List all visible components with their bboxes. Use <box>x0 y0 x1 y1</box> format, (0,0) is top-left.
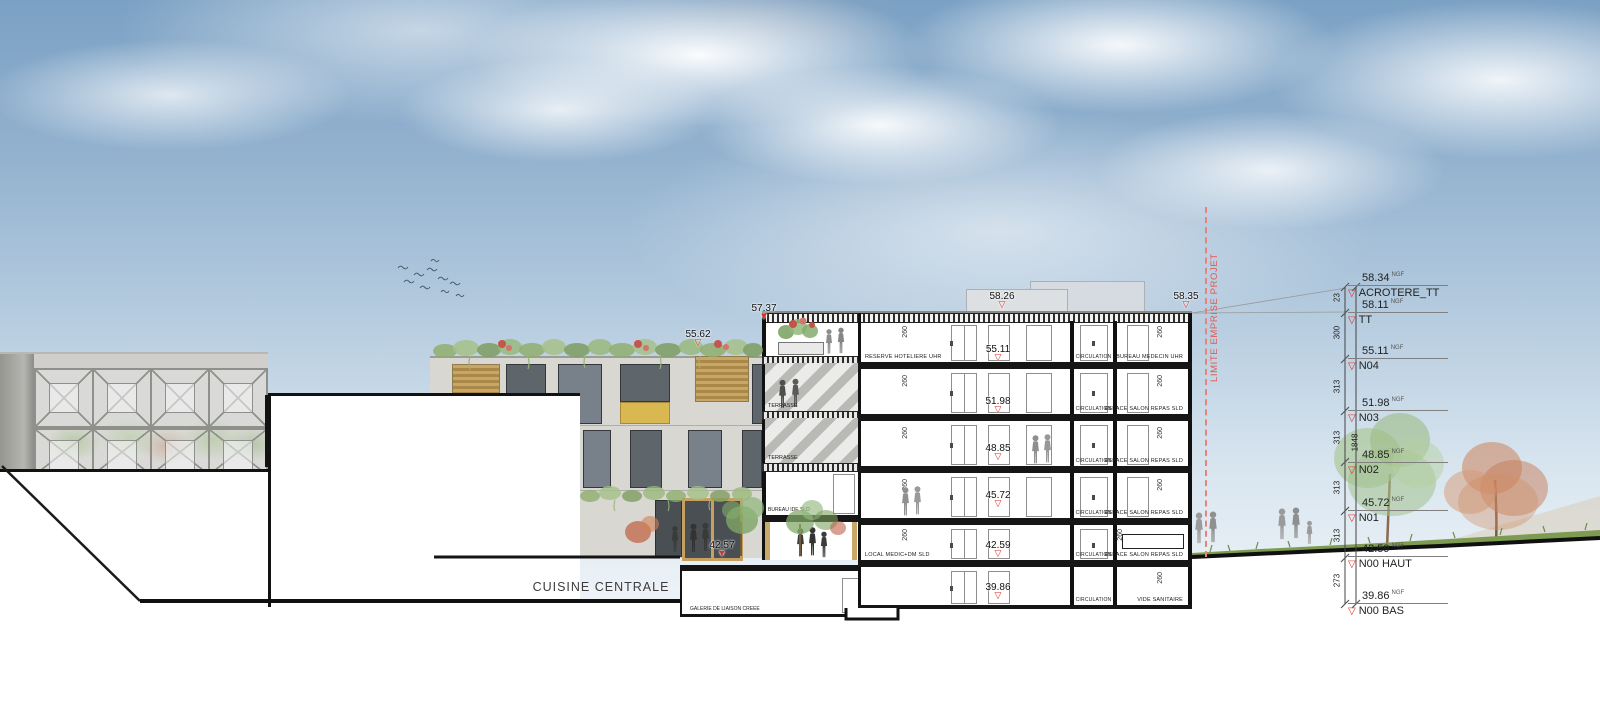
floor-n04: RESERVE HOTELIERE UHR 260 CIRCULATION BU… <box>861 321 1186 362</box>
yellow-spandrel <box>620 402 670 424</box>
facade-cell <box>150 428 210 472</box>
dim-segment: 313 <box>1333 372 1342 402</box>
marker-triangle-icon: ▽ <box>974 353 1022 363</box>
room-height: 260 <box>902 326 909 338</box>
floor-level-marker: 48.85▽ <box>974 443 1022 462</box>
person-silhouette <box>795 526 806 559</box>
room-label: LOCAL MEDIC+DM SLD <box>865 552 930 558</box>
floor-n01: 260 CIRCULATION ESPACE SALON REPAS SLD 2… <box>861 473 1186 518</box>
table <box>1122 534 1184 549</box>
facade-cell <box>92 428 152 472</box>
room-height: 260 <box>1117 529 1124 541</box>
marker-triangle-icon: ▽ <box>674 338 722 348</box>
right-level-n04: 55.11NGF ▽N04 <box>1348 345 1456 372</box>
roof-planter <box>778 342 824 355</box>
right-level-n01: 45.72NGF ▽N01 <box>1348 497 1456 524</box>
marker-triangle-icon: ▽ <box>1348 315 1356 326</box>
window <box>583 430 611 488</box>
facade-cell <box>208 368 268 428</box>
facade-cell <box>208 428 268 472</box>
room-height: 260 <box>1157 572 1164 584</box>
person-silhouette <box>900 487 911 516</box>
marker-triangle-icon: ▽ <box>974 452 1022 462</box>
window <box>630 430 662 488</box>
facade-cell <box>34 428 94 472</box>
level-marker-5826: 58.26▽ <box>978 291 1026 310</box>
floor-level-marker: 55.11▽ <box>974 344 1022 363</box>
facade-cell <box>92 368 152 428</box>
room-height: 260 <box>1157 479 1164 491</box>
galerie-label: GALERIE DE LIAISON CREEE <box>690 606 760 612</box>
marker-triangle-icon: ▽ <box>1348 465 1356 476</box>
ground-glazing <box>655 500 682 557</box>
circulation-label: CIRCULATION <box>1074 597 1113 603</box>
right-level-acrotere: 58.34NGF ▽ACROTERE_TT <box>1348 272 1456 299</box>
room-height: 260 <box>1157 375 1164 387</box>
room-label: ESPACE SALON REPAS SLD <box>1105 510 1183 516</box>
marker-triangle-icon: ▼ <box>740 312 788 322</box>
room-label: ESPACE SALON REPAS SLD <box>1105 552 1183 558</box>
marker-triangle-icon: ▽ <box>1348 361 1356 372</box>
floor-level-marker: 51.98▽ <box>974 396 1022 415</box>
room-label: ESPACE SALON REPAS SLD <box>1105 406 1183 412</box>
room-height: 260 <box>1157 427 1164 439</box>
limite-emprise-line <box>1205 207 1207 557</box>
right-level-n03: 51.98NGF ▽N03 <box>1348 397 1456 424</box>
bureau-ide-room: BUREAU IDE SLD <box>765 470 858 515</box>
ground-white-left <box>0 464 270 609</box>
terrasse-label: TERRASSE <box>768 455 798 461</box>
wall <box>1113 567 1117 605</box>
marker-triangle-icon: ▽ <box>974 591 1022 601</box>
room-height: 260 <box>902 479 909 491</box>
galerie-liaison: GALERIE DE LIAISON CREEE <box>680 565 860 617</box>
floor-level-marker: 39.86▽ <box>974 582 1022 601</box>
level-marker-5562: 55.62▽ <box>674 329 722 348</box>
room-height: 260 <box>902 375 909 387</box>
terrasse-upper: TERRASSE <box>765 363 858 411</box>
terrasse-label: TERRASSE <box>768 403 798 409</box>
floor-n03: 260 CIRCULATION ESPACE SALON REPAS SLD 2… <box>861 369 1186 414</box>
facade-cell <box>34 368 94 428</box>
room-height: 260 <box>902 529 909 541</box>
right-level-tt: 58.11NGF ▽TT <box>1348 299 1456 326</box>
marker-triangle-icon: ▽ <box>974 499 1022 509</box>
room-height: 260 <box>1157 326 1164 338</box>
door <box>1026 477 1052 517</box>
terrasse-lower: TERRASSE <box>765 418 858 463</box>
facade-cell <box>150 368 210 428</box>
window <box>742 430 762 488</box>
cuisine-centrale-cut <box>268 393 580 607</box>
person-silhouette <box>912 485 923 516</box>
dim-segment: 300 <box>1333 318 1342 348</box>
marker-triangle-icon: ▽ <box>1348 413 1356 424</box>
window <box>688 430 722 488</box>
floor-n00-haut: LOCAL MEDIC+DM SLD 260 CIRCULATION ESPAC… <box>861 525 1186 560</box>
room-label: VIDE SANITAIRE <box>1137 597 1183 603</box>
person-silhouette <box>824 329 834 354</box>
level-marker-5737: 57.37▼ <box>740 303 788 322</box>
dim-segment: 273 <box>1333 566 1342 596</box>
circulation-label: CIRCULATION <box>1074 354 1113 360</box>
door <box>1026 373 1052 413</box>
room-height: 260 <box>902 427 909 439</box>
dim-segment: 313 <box>1333 423 1342 453</box>
column <box>765 522 770 560</box>
window <box>620 364 670 402</box>
marker-triangle-icon: ▽ <box>1348 606 1356 617</box>
limite-emprise-label: LIMITE EMPRISE PROJET <box>1209 212 1220 382</box>
marker-triangle-icon: ▽ <box>974 405 1022 415</box>
room-label: ESPACE SALON REPAS SLD <box>1105 458 1183 464</box>
room-label: BUREAU MEDECIN UHR <box>1116 354 1183 360</box>
dim-segment: 23 <box>1333 283 1342 313</box>
right-level-n02: 48.85NGF ▽N02 <box>1348 449 1456 476</box>
floor-level-marker: 45.72▽ <box>974 490 1022 509</box>
facade-pier <box>0 354 34 469</box>
marker-triangle-icon: ▽ <box>1348 559 1356 570</box>
floor-n02: 260 CIRCULATION ESPACE SALON REPAS SLD 2… <box>861 421 1186 466</box>
galerie-door <box>842 578 859 613</box>
person-silhouette <box>807 524 818 559</box>
column <box>852 522 857 560</box>
bureau-ide-label: BUREAU IDE SLD <box>768 507 810 513</box>
door <box>1026 425 1052 465</box>
section-building-main: RESERVE HOTELIERE UHR 260 CIRCULATION BU… <box>858 311 1192 609</box>
floor-level-marker: 42.59▽ <box>974 540 1022 559</box>
level-marker-4257: 42.57▼ <box>698 540 746 559</box>
cuisine-centrale-label: CUISINE CENTRALE <box>516 580 686 594</box>
right-level-n00-haut: 42.59NGF ▽N00 HAUT <box>1348 543 1456 570</box>
dim-segment: 313 <box>1333 521 1342 551</box>
architectural-section-drawing: CUISINE CENTRALE GALERIE DE LIAISON CREE… <box>0 0 1600 720</box>
dim-total: 1848 <box>1351 428 1360 458</box>
louvered-window <box>695 356 749 402</box>
existing-building-west <box>0 352 268 472</box>
marker-triangle-icon: ▽ <box>978 300 1026 310</box>
marker-triangle-icon: ▽ <box>1348 288 1356 299</box>
room-label: RESERVE HOTELIERE UHR <box>865 354 942 360</box>
floor-n00-bas: CIRCULATION VIDE SANITAIRE 260 <box>861 567 1186 605</box>
section-terrace-bay: TERRASSE TERRASSE BUREAU IDE SLD <box>762 311 858 560</box>
person-silhouette <box>836 327 846 354</box>
marker-triangle-icon: ▽ <box>1162 300 1210 310</box>
marker-triangle-icon: ▼ <box>698 549 746 559</box>
marker-triangle-icon: ▽ <box>1348 513 1356 524</box>
dim-segment: 313 <box>1333 473 1342 503</box>
level-marker-5835: 58.35▽ <box>1162 291 1210 310</box>
marker-triangle-icon: ▽ <box>974 549 1022 559</box>
person-silhouette <box>819 530 829 559</box>
right-level-n00-bas: 39.86NGF ▽N00 BAS <box>1348 590 1456 617</box>
ground-white-bottom <box>0 600 1600 720</box>
door <box>1026 325 1052 361</box>
